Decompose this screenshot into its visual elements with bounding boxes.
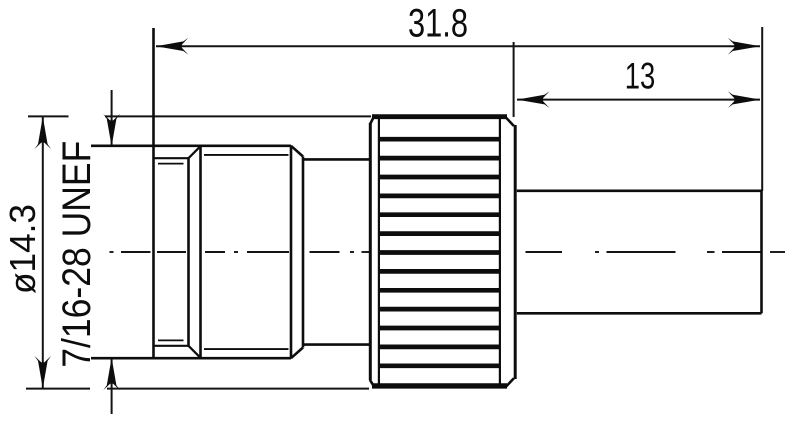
svg-text:13: 13	[625, 55, 656, 96]
svg-text:7/16-28 UNEF: 7/16-28 UNEF	[55, 141, 99, 368]
svg-text:31.8: 31.8	[408, 2, 468, 46]
svg-text:ø14.3: ø14.3	[2, 204, 43, 294]
